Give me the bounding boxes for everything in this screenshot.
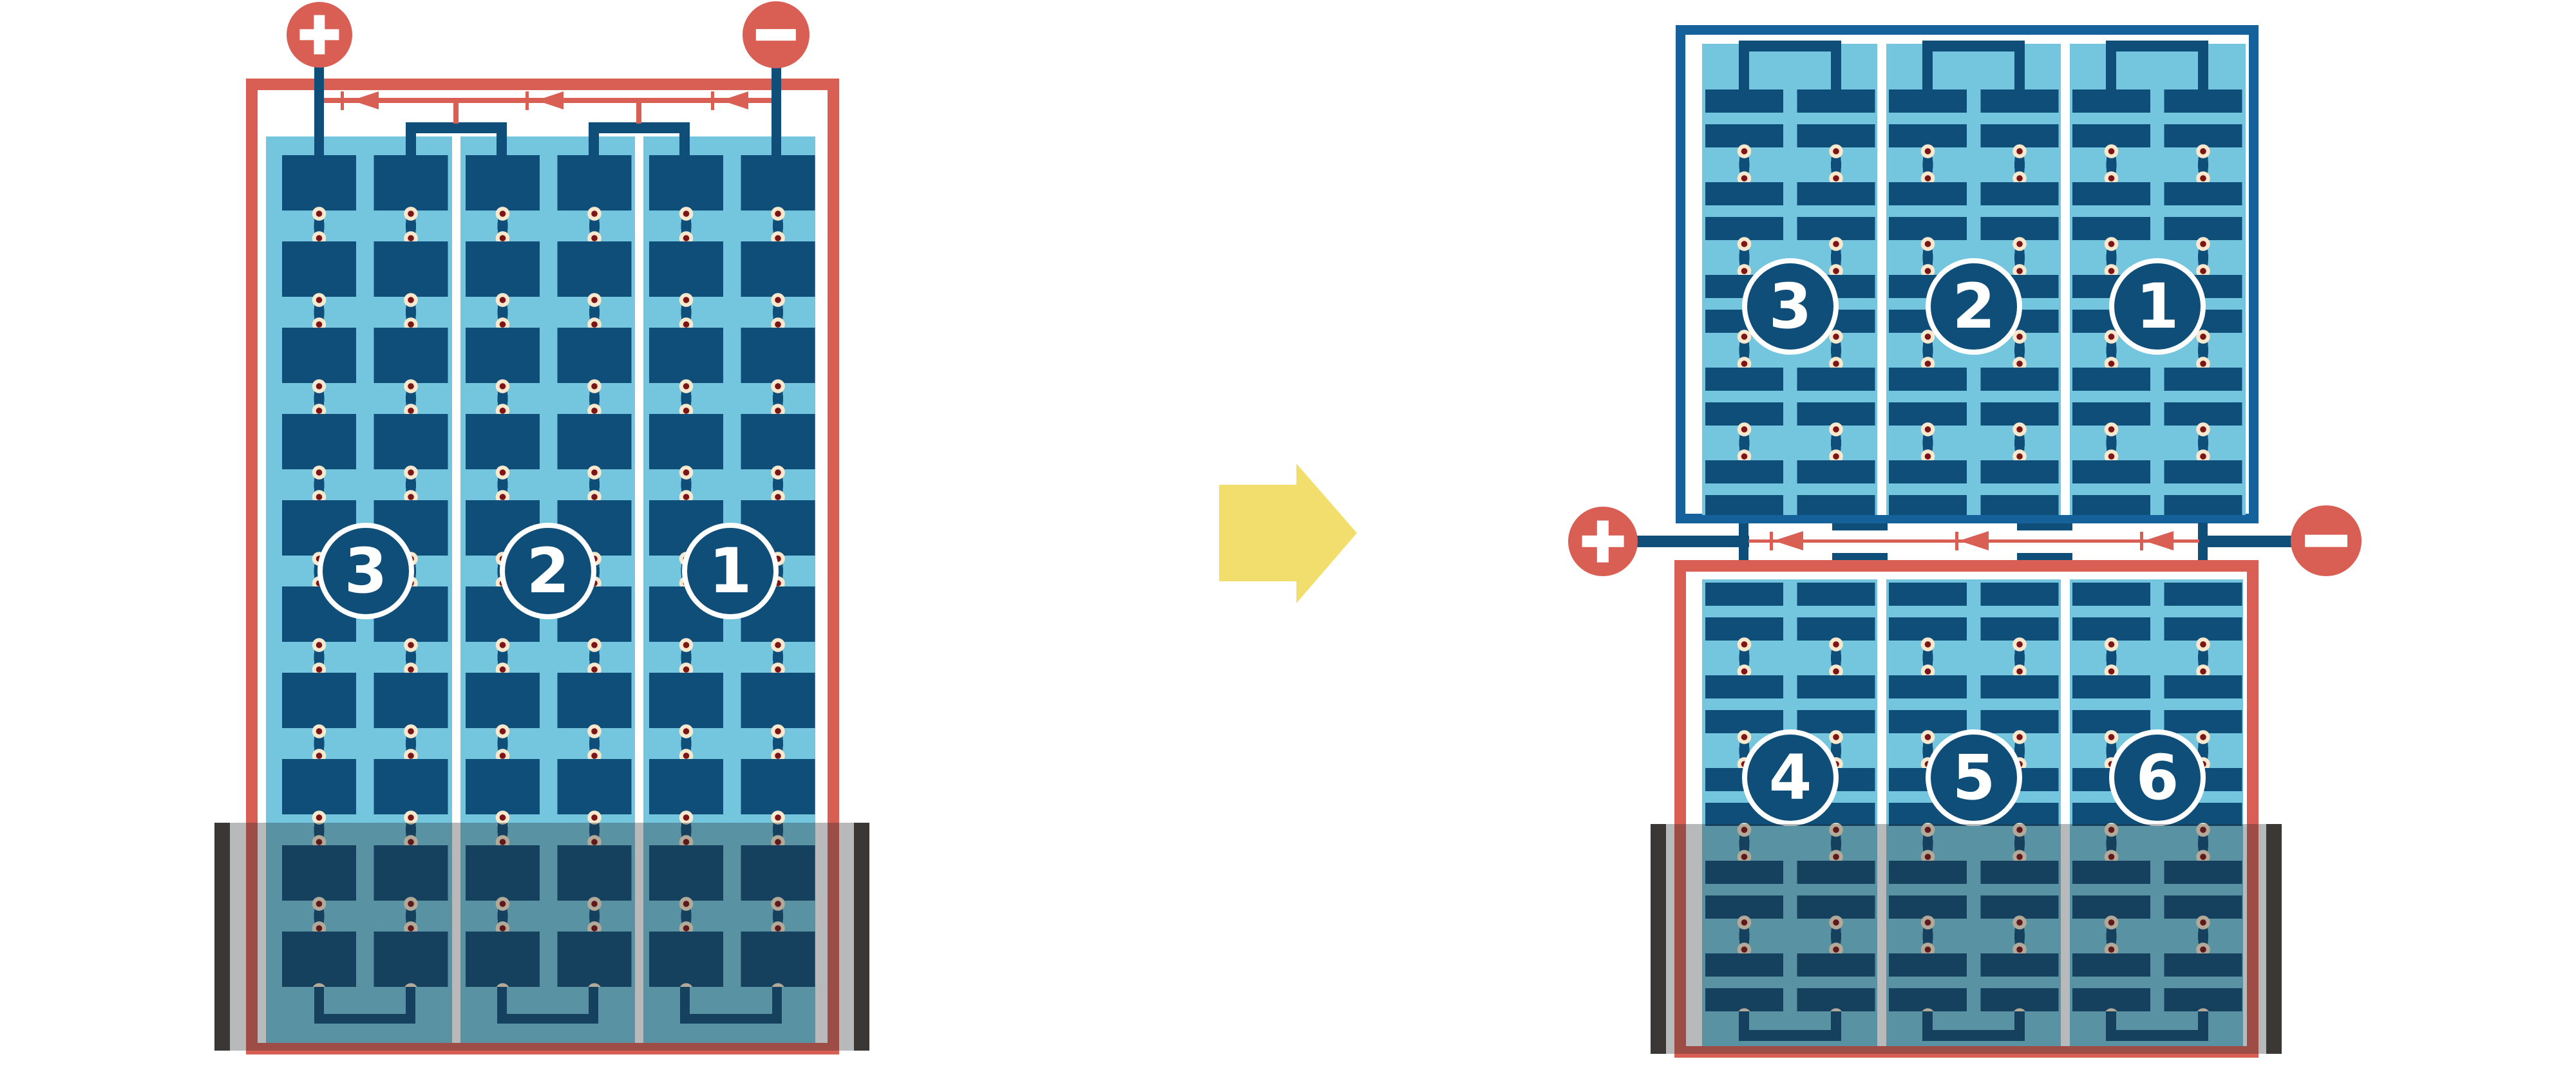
terminal-stem (314, 61, 324, 155)
junction-stub (2017, 523, 2072, 530)
shade-edge-bar (1651, 824, 1666, 1054)
minus-icon: − (2291, 505, 2291, 506)
bus-riser (2198, 523, 2208, 560)
shade-edge-bar (2266, 824, 2282, 1054)
shade-edge-bar (214, 823, 230, 1051)
string-jumper-top (406, 122, 507, 155)
string-badge: 6 (2109, 729, 2206, 826)
string-badge: 1 (2109, 258, 2206, 355)
terminal-stem (772, 61, 781, 155)
junction-stub (2017, 553, 2072, 560)
arrow-body (1219, 485, 1296, 581)
string-badge: 2 (500, 523, 596, 619)
current-flow-tick (711, 91, 714, 110)
positive-terminal: + (1568, 507, 1638, 576)
junction-stub (1832, 523, 1888, 530)
current-flow-arrowhead-icon (536, 91, 563, 109)
string-badge: 5 (1926, 729, 2022, 826)
shade-overlay (1651, 824, 2282, 1054)
plus-icon: + (287, 2, 287, 3)
current-flow-arrowhead-icon (721, 91, 748, 109)
bus-riser (1739, 523, 1748, 560)
positive-terminal: + (287, 2, 352, 68)
jumper-tap (636, 102, 641, 124)
diagram-canvas: + − 3 2 1 3 2 1 (0, 0, 2576, 1068)
plus-icon: + (1568, 507, 1569, 507)
string-badge: 3 (1742, 258, 1839, 355)
string-separator (1877, 44, 1886, 515)
negative-terminal: − (743, 1, 810, 68)
current-flow-tick (526, 91, 529, 110)
shade-overlay (214, 823, 869, 1051)
string-separator (2061, 44, 2070, 515)
negative-terminal: − (2291, 505, 2362, 576)
junction-stub (1832, 553, 1888, 560)
current-flow-arrowhead-icon (1774, 531, 1803, 550)
current-flow-tick (1770, 532, 1773, 550)
string-badge: 1 (682, 523, 779, 619)
current-flow-arrowhead-icon (2144, 531, 2173, 550)
string-jumper-top (1922, 41, 2025, 89)
minus-icon: − (743, 1, 743, 2)
current-flow-arrowhead-icon (352, 91, 379, 109)
bus-bar (2198, 536, 2297, 547)
string-jumper-top (1739, 41, 1841, 89)
current-flow-tick (2140, 532, 2143, 550)
jumper-tap (453, 102, 459, 124)
bus-bar (1633, 536, 1749, 547)
current-flow-tick (1955, 532, 1958, 550)
current-flow-tick (341, 91, 344, 110)
arrow-head-icon (1296, 464, 1357, 603)
string-jumper-top (2106, 41, 2208, 89)
shade-edge-bar (854, 823, 869, 1051)
string-badge: 3 (317, 523, 414, 619)
current-flow-arrowhead-icon (1959, 531, 1989, 550)
string-jumper-top (589, 122, 690, 155)
string-badge: 4 (1742, 729, 1839, 826)
string-badge: 2 (1926, 258, 2022, 355)
